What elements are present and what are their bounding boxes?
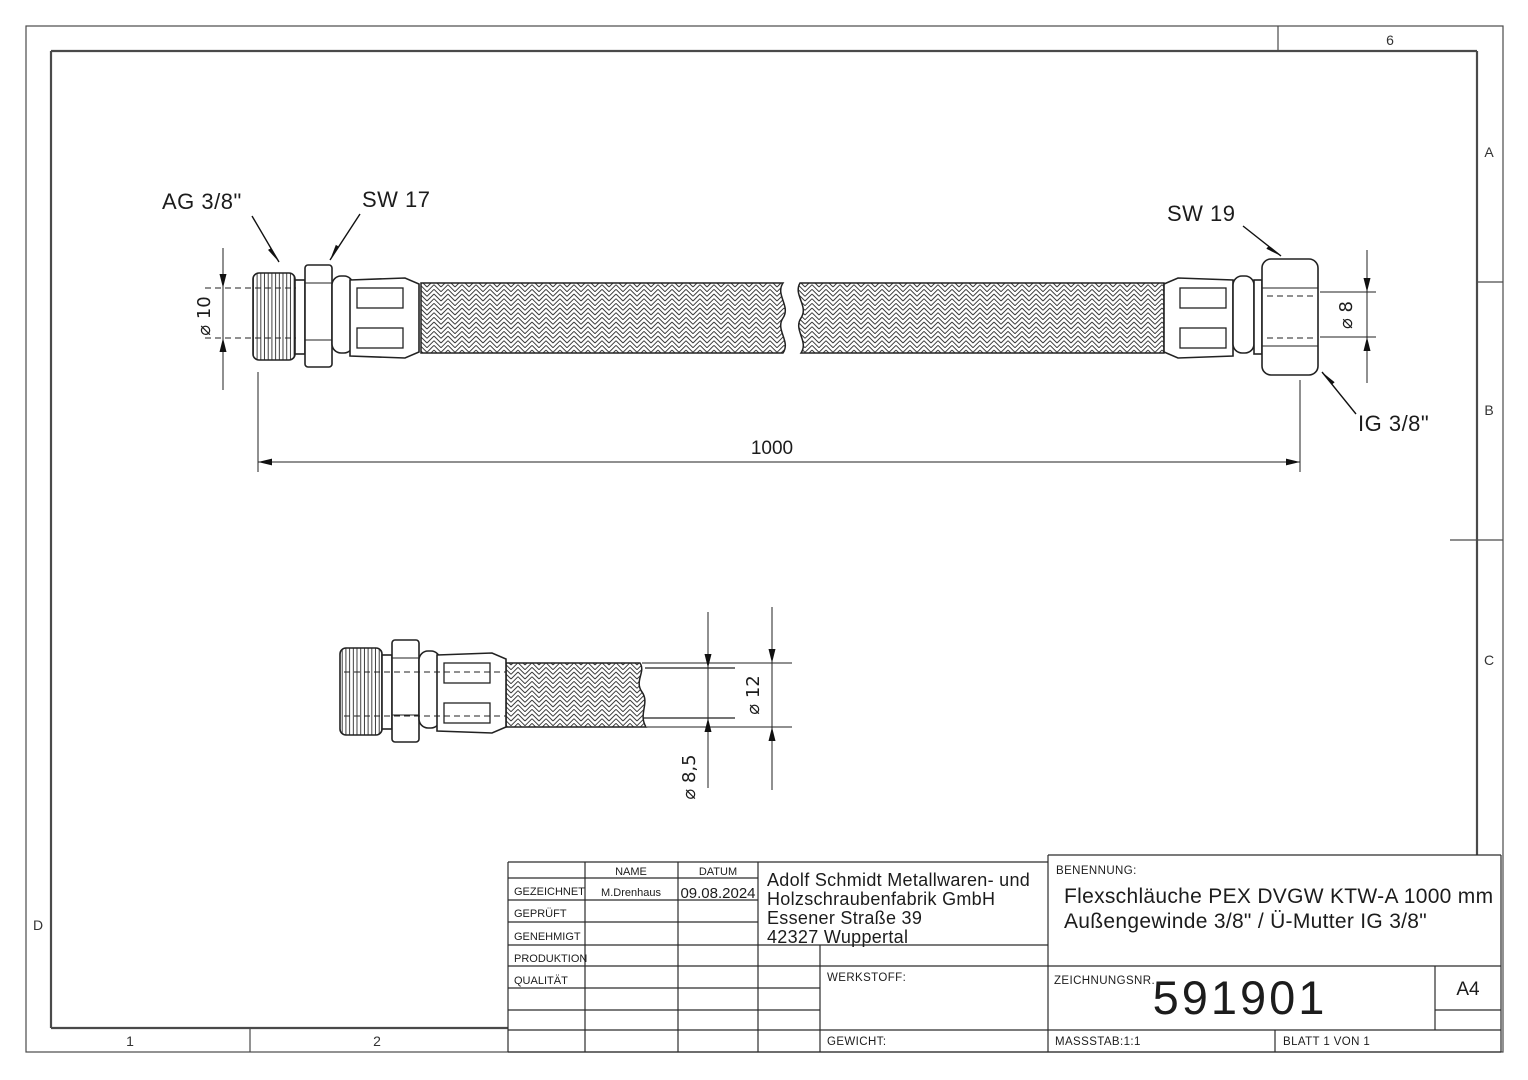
company-line3: Essener Straße 39 <box>767 908 922 928</box>
company-address: Adolf Schmidt Metallwaren- und Holzschra… <box>767 870 1030 947</box>
male-thread <box>340 648 382 735</box>
part-title-line1: Flexschläuche PEX DVGW KTW-A 1000 mm <box>1064 885 1493 908</box>
detail-view-hose-end: ⌀ 8,5 ⌀ 12 <box>340 607 792 800</box>
sleeve-collar <box>1233 276 1254 353</box>
zone-label-2: 2 <box>373 1033 381 1049</box>
label-sw19: SW 19 <box>1167 201 1236 226</box>
sleeve-window <box>357 328 403 348</box>
thread-step <box>295 280 305 354</box>
nut-step <box>1254 280 1262 354</box>
row-label-geprueft: GEPRÜFT <box>514 908 567 920</box>
dim-arrow <box>1364 278 1371 292</box>
sleeve-window <box>444 703 490 723</box>
row-label-gezeichnet: GEZEICHNET <box>514 886 585 898</box>
company-line2: Holzschraubenfabrik GmbH <box>767 889 995 909</box>
inner-tube-lines <box>643 668 735 718</box>
gewicht-label: GEWICHT: <box>827 1036 886 1048</box>
part-title-line2: Außengewinde 3/8" / Ü-Mutter IG 3/8" <box>1064 910 1427 933</box>
left-fitting-male-detail <box>340 640 506 742</box>
drawing-number: 591901 <box>1153 971 1328 1024</box>
inner-border <box>51 51 1477 1028</box>
dimension-diameter-85: ⌀ 8,5 <box>679 612 712 800</box>
gezeichnet-name: M.Drenhaus <box>601 887 661 899</box>
top-view-hose: ⌀ 10 ⌀ 8 1000 AG 3/8" SW 17 SW 19 <box>162 187 1429 472</box>
company-line4: 42327 Wuppertal <box>767 927 908 947</box>
approval-table: NAME DATUM GEZEICHNET M.Drenhaus 09.08.2… <box>514 866 756 987</box>
dim-arrow <box>705 718 712 732</box>
zone-label-a: A <box>1484 144 1494 160</box>
label-ag38: AG 3/8" <box>162 189 242 214</box>
dim-text-d85: ⌀ 8,5 <box>679 754 700 799</box>
paper-format: A4 <box>1456 979 1480 1000</box>
dim-arrow <box>705 654 712 668</box>
dim-text-d12: ⌀ 12 <box>743 675 764 714</box>
dimension-length-1000: 1000 <box>258 372 1300 472</box>
thread-step <box>382 655 392 729</box>
dim-arrow <box>258 459 272 466</box>
row-label-qualitaet: QUALITÄT <box>514 975 568 987</box>
sleeve-window <box>357 288 403 308</box>
dim-arrow <box>220 274 227 288</box>
sleeve-window <box>444 663 490 683</box>
braided-hose-section <box>506 663 646 727</box>
zeichnungsnr-label: ZEICHNUNGSNR. <box>1054 975 1155 987</box>
braided-hose-left-segment <box>421 283 785 353</box>
sleeve-window <box>1180 328 1226 348</box>
technical-drawing-canvas: 6 A B C D 1 2 <box>0 0 1528 1080</box>
right-fitting-nut <box>1164 259 1318 375</box>
zone-label-6: 6 <box>1386 32 1394 48</box>
left-fitting-male <box>253 265 419 367</box>
col-header-datum: DATUM <box>699 866 737 878</box>
gezeichnet-datum: 09.08.2024 <box>680 885 755 902</box>
benennung-label: BENENNUNG: <box>1056 865 1137 877</box>
zone-label-1: 1 <box>126 1033 134 1049</box>
dim-arrow <box>1364 337 1371 351</box>
massstab-label: MASSSTAB:1:1 <box>1055 1036 1141 1048</box>
dimension-diameter-12: ⌀ 12 <box>743 607 776 790</box>
dim-arrow <box>769 649 776 663</box>
dim-text-d10: ⌀ 10 <box>194 296 215 335</box>
title-block: NAME DATUM GEZEICHNET M.Drenhaus 09.08.2… <box>508 855 1501 1052</box>
leader-line <box>330 214 360 260</box>
blatt-label: BLATT 1 VON 1 <box>1283 1036 1370 1048</box>
dim-text-1000: 1000 <box>751 438 793 459</box>
company-line1: Adolf Schmidt Metallwaren- und <box>767 870 1030 890</box>
dim-arrow <box>1286 459 1300 466</box>
label-ig38: IG 3/8" <box>1358 411 1429 436</box>
dimension-diameter-8: ⌀ 8 <box>1320 250 1376 383</box>
male-thread <box>253 273 295 360</box>
label-sw17: SW 17 <box>362 187 431 212</box>
drawing-number-cell: ZEICHNUNGSNR. 591901 <box>1054 971 1327 1024</box>
werkstoff-label: WERKSTOFF: <box>827 972 906 984</box>
zone-label-b: B <box>1484 402 1493 418</box>
leader-line <box>1322 372 1356 414</box>
dim-arrow <box>769 727 776 741</box>
leader-line <box>252 216 279 262</box>
leader-line <box>1243 226 1281 256</box>
hex-nut <box>392 640 419 742</box>
hex-nut-sw19 <box>1262 259 1318 375</box>
dim-text-d8: ⌀ 8 <box>1336 301 1357 329</box>
zone-label-d: D <box>33 917 43 933</box>
dim-arrow <box>220 338 227 352</box>
designation-cell: BENENNUNG: Flexschläuche PEX DVGW KTW-A … <box>1056 865 1493 933</box>
col-header-name: NAME <box>615 866 647 878</box>
row-label-produktion: PRODUKTION <box>514 953 587 965</box>
zone-label-c: C <box>1484 652 1494 668</box>
hex-nut-sw17 <box>305 265 332 367</box>
row-label-genehmigt: GENEHMIGT <box>514 931 581 943</box>
braided-hose-right-segment <box>798 283 1164 353</box>
sleeve-window <box>1180 288 1226 308</box>
